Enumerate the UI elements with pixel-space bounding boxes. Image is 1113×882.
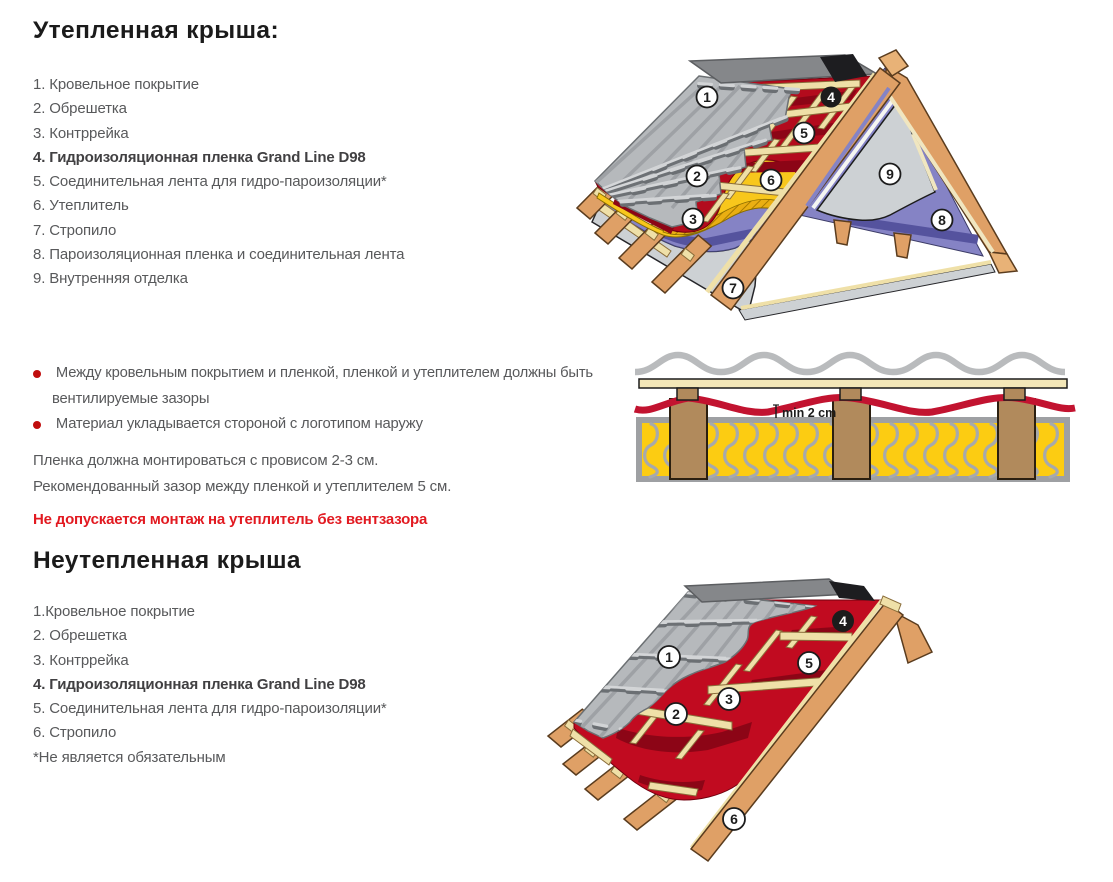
svg-text:6: 6 [730, 811, 738, 827]
svg-text:9: 9 [886, 166, 894, 182]
svg-text:2: 2 [672, 706, 680, 722]
svg-text:5: 5 [800, 125, 808, 141]
svg-text:5: 5 [805, 655, 813, 671]
svg-text:6: 6 [767, 172, 775, 188]
svg-text:1: 1 [703, 89, 711, 105]
svg-text:3: 3 [689, 211, 697, 227]
svg-text:3: 3 [725, 691, 733, 707]
svg-text:4: 4 [839, 613, 847, 629]
svg-text:7: 7 [729, 280, 737, 296]
svg-text:2: 2 [693, 168, 701, 184]
svg-text:4: 4 [827, 89, 835, 105]
svg-text:min 2 cm: min 2 cm [782, 406, 836, 420]
svg-text:1: 1 [665, 649, 673, 665]
svg-text:8: 8 [938, 212, 946, 228]
